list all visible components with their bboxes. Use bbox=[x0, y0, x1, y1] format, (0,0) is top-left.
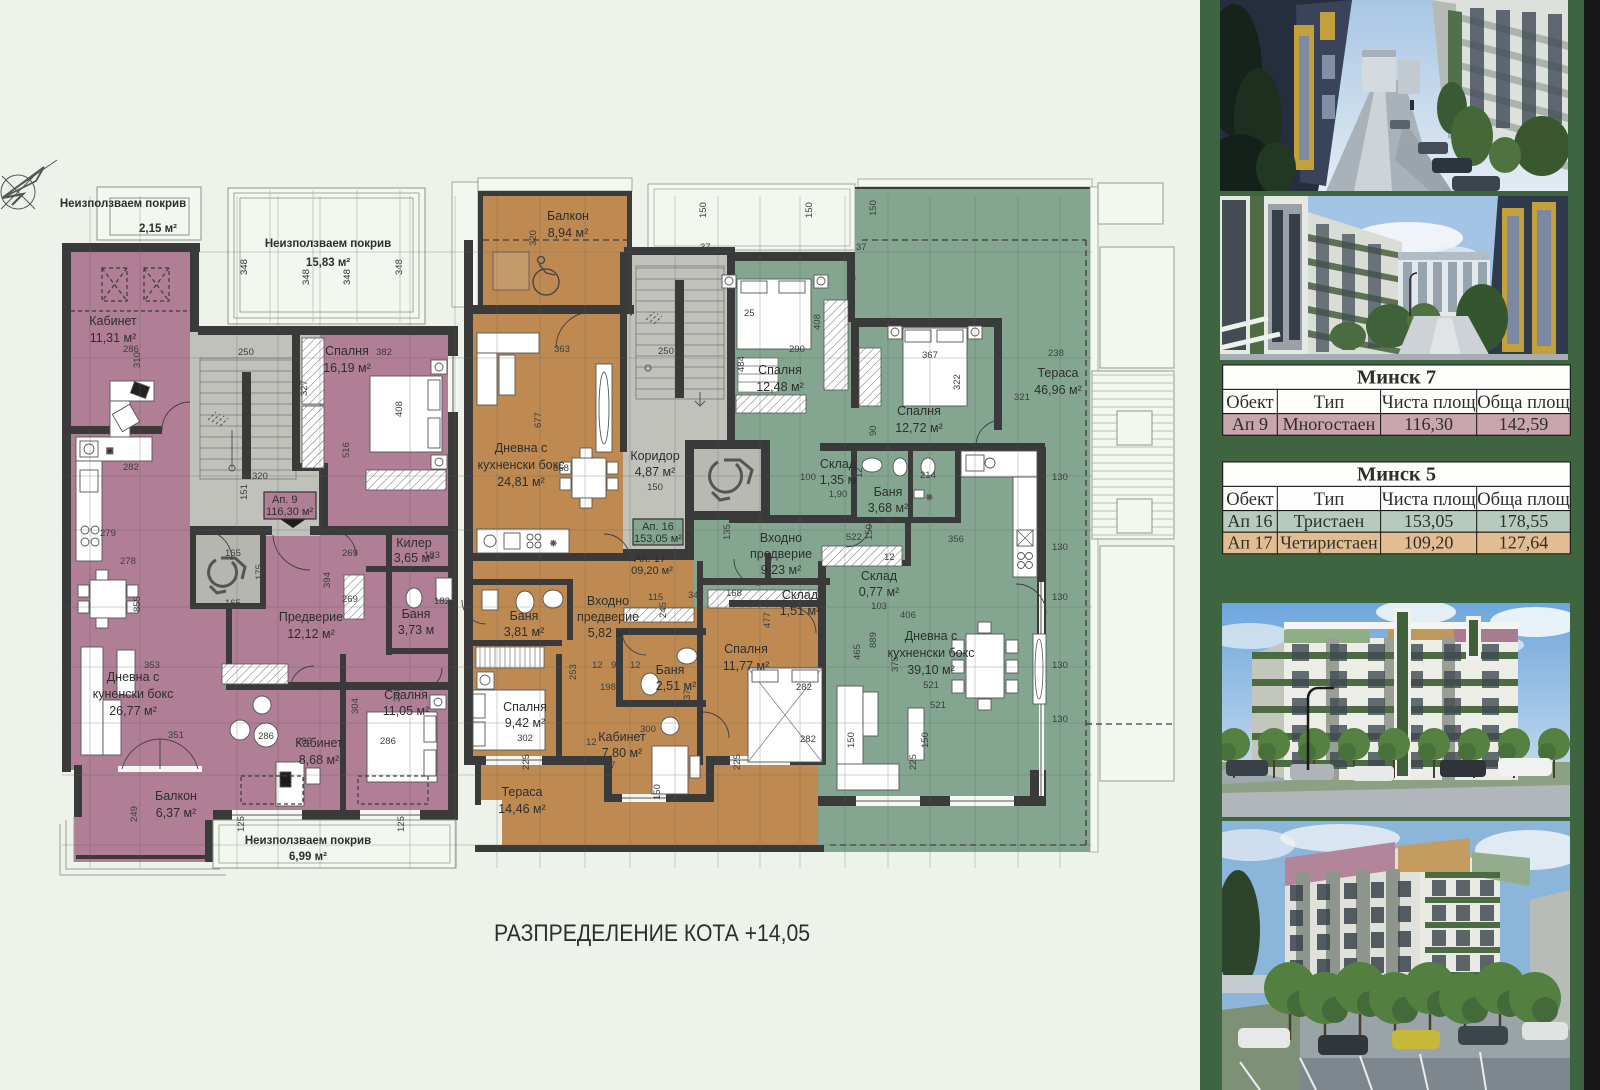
svg-text:3,81 м²: 3,81 м² bbox=[504, 625, 545, 639]
svg-text:37: 37 bbox=[605, 760, 616, 771]
svg-text:26,77 м²: 26,77 м² bbox=[109, 704, 157, 718]
svg-text:100: 100 bbox=[800, 472, 816, 483]
svg-text:✳: ✳ bbox=[550, 539, 557, 548]
svg-text:12,72 м²: 12,72 м² bbox=[895, 421, 943, 435]
svg-text:Склад: Склад bbox=[820, 457, 857, 471]
svg-text:Спалня: Спалня bbox=[724, 642, 768, 656]
svg-text:90: 90 bbox=[611, 660, 622, 671]
svg-text:368: 368 bbox=[553, 463, 569, 474]
svg-text:9,23 м²: 9,23 м² bbox=[761, 563, 802, 577]
svg-text:7,80 м²: 7,80 м² bbox=[602, 746, 643, 760]
svg-text:225: 225 bbox=[521, 754, 532, 770]
svg-text:2,15 м²: 2,15 м² bbox=[139, 223, 177, 235]
svg-text:4,87 м²: 4,87 м² bbox=[635, 465, 676, 479]
svg-text:Неизползваем покрив: Неизползваем покрив bbox=[60, 198, 186, 210]
svg-text:Минск 5: Минск 5 bbox=[1357, 464, 1436, 486]
svg-text:223: 223 bbox=[624, 300, 635, 316]
svg-text:12: 12 bbox=[586, 737, 597, 748]
svg-text:348: 348 bbox=[239, 259, 250, 275]
svg-text:Кабинет: Кабинет bbox=[89, 314, 137, 328]
svg-text:11,05 м²: 11,05 м² bbox=[383, 704, 430, 718]
svg-text:388: 388 bbox=[392, 686, 403, 702]
svg-text:225: 225 bbox=[908, 754, 919, 770]
svg-text:Баня: Баня bbox=[402, 607, 431, 621]
svg-text:300: 300 bbox=[640, 724, 656, 735]
svg-text:125: 125 bbox=[396, 816, 407, 832]
svg-text:406: 406 bbox=[900, 610, 916, 621]
svg-text:37: 37 bbox=[682, 689, 693, 700]
svg-text:Баня: Баня bbox=[510, 609, 539, 623]
svg-text:150: 150 bbox=[868, 200, 879, 216]
svg-text:521: 521 bbox=[930, 700, 946, 711]
svg-text:Входно: Входно bbox=[587, 594, 629, 608]
svg-text:348: 348 bbox=[301, 269, 312, 285]
svg-text:16,19 м²: 16,19 м² bbox=[323, 361, 371, 375]
svg-text:150: 150 bbox=[920, 732, 931, 748]
svg-text:Коридор: Коридор bbox=[630, 449, 679, 463]
svg-text:522: 522 bbox=[846, 532, 862, 543]
svg-text:Спалня: Спалня bbox=[503, 700, 547, 714]
svg-text:Обект: Обект bbox=[1226, 393, 1274, 413]
svg-text:Килер: Килер bbox=[396, 536, 432, 550]
svg-text:279: 279 bbox=[100, 528, 116, 539]
svg-text:103: 103 bbox=[871, 601, 887, 612]
svg-text:282: 282 bbox=[123, 462, 139, 473]
svg-text:521: 521 bbox=[923, 680, 939, 691]
svg-text:Ап 9: Ап 9 bbox=[1232, 414, 1268, 434]
svg-text:▣: ▣ bbox=[106, 446, 114, 455]
svg-text:Чиста площ: Чиста площ bbox=[1382, 490, 1476, 510]
svg-text:11,31 м²: 11,31 м² bbox=[90, 331, 137, 345]
svg-text:Ап. 17: Ап. 17 bbox=[634, 553, 666, 565]
svg-text:250: 250 bbox=[658, 346, 674, 357]
svg-text:142,59: 142,59 bbox=[1499, 414, 1549, 434]
svg-text:130: 130 bbox=[1052, 542, 1068, 553]
svg-text:39,10 м²: 39,10 м² bbox=[907, 663, 955, 677]
svg-text:куненски бокс: куненски бокс bbox=[93, 687, 174, 701]
svg-text:304: 304 bbox=[350, 698, 361, 714]
svg-text:12: 12 bbox=[630, 660, 641, 671]
svg-text:356: 356 bbox=[948, 534, 964, 545]
svg-text:394: 394 bbox=[322, 572, 333, 588]
svg-text:282: 282 bbox=[796, 682, 812, 693]
svg-text:150: 150 bbox=[804, 202, 815, 218]
svg-text:115: 115 bbox=[648, 592, 663, 603]
svg-text:Балкон: Балкон bbox=[547, 209, 589, 223]
svg-text:282: 282 bbox=[800, 734, 816, 745]
svg-text:37: 37 bbox=[856, 242, 867, 253]
svg-text:178,55: 178,55 bbox=[1499, 511, 1549, 531]
svg-text:Спалня: Спалня bbox=[325, 344, 369, 358]
svg-text:12: 12 bbox=[592, 660, 603, 671]
svg-text:0,77 м²: 0,77 м² bbox=[859, 585, 900, 599]
svg-text:кухненски бокс: кухненски бокс bbox=[477, 458, 564, 472]
svg-text:278: 278 bbox=[120, 556, 136, 567]
svg-text:182: 182 bbox=[434, 596, 450, 607]
svg-text:327: 327 bbox=[299, 380, 310, 396]
svg-text:165: 165 bbox=[225, 548, 241, 559]
svg-text:Многостаен: Многостаен bbox=[1283, 414, 1376, 434]
svg-text:320: 320 bbox=[528, 230, 539, 246]
svg-text:Ап. 9: Ап. 9 bbox=[272, 494, 298, 506]
svg-text:Обща площ: Обща площ bbox=[1477, 393, 1569, 413]
svg-text:290: 290 bbox=[789, 344, 805, 355]
svg-text:3,73 м: 3,73 м bbox=[398, 623, 434, 637]
svg-text:Ап 16: Ап 16 bbox=[1227, 511, 1272, 531]
svg-text:408: 408 bbox=[394, 401, 405, 417]
svg-text:11,77 м²: 11,77 м² bbox=[723, 659, 770, 673]
svg-text:175: 175 bbox=[254, 564, 265, 580]
svg-text:Баня: Баня bbox=[656, 663, 685, 677]
svg-text:Четиристаен: Четиристаен bbox=[1280, 533, 1378, 553]
svg-text:382: 382 bbox=[376, 347, 392, 358]
svg-text:Предверие: Предверие bbox=[279, 610, 343, 624]
svg-text:6,37 м²: 6,37 м² bbox=[156, 806, 197, 820]
svg-text:Кабинет: Кабинет bbox=[598, 730, 646, 744]
svg-text:90: 90 bbox=[868, 425, 879, 436]
svg-text:150: 150 bbox=[647, 482, 663, 493]
svg-text:320: 320 bbox=[252, 471, 268, 482]
svg-text:321: 321 bbox=[1014, 392, 1030, 403]
svg-text:348: 348 bbox=[342, 269, 353, 285]
svg-text:310: 310 bbox=[132, 352, 143, 368]
svg-text:25: 25 bbox=[744, 308, 755, 319]
svg-text:353: 353 bbox=[144, 660, 160, 671]
svg-text:Тераса: Тераса bbox=[502, 785, 543, 799]
svg-text:150: 150 bbox=[652, 784, 663, 800]
svg-text:предверие: предверие bbox=[750, 547, 812, 561]
svg-text:130: 130 bbox=[1052, 714, 1068, 725]
svg-text:135: 135 bbox=[722, 524, 733, 540]
svg-text:Спалня: Спалня bbox=[758, 363, 802, 377]
svg-text:Тип: Тип bbox=[1314, 393, 1345, 413]
svg-text:24,81 м²: 24,81 м² bbox=[497, 475, 545, 489]
svg-text:12,12 м²: 12,12 м² bbox=[287, 627, 335, 641]
svg-text:8,68 м²: 8,68 м² bbox=[299, 753, 340, 767]
svg-text:Тристаен: Тристаен bbox=[1294, 511, 1365, 531]
svg-text:269: 269 bbox=[342, 594, 358, 605]
svg-text:855: 855 bbox=[132, 596, 143, 612]
svg-text:302: 302 bbox=[517, 733, 533, 744]
svg-text:225: 225 bbox=[732, 754, 743, 770]
svg-text:09,20 м²: 09,20 м² bbox=[631, 565, 673, 577]
svg-text:249: 249 bbox=[129, 806, 140, 822]
svg-text:Обща площ: Обща площ bbox=[1477, 490, 1569, 510]
svg-text:214: 214 bbox=[920, 470, 936, 481]
svg-text:130: 130 bbox=[1052, 472, 1068, 483]
svg-text:Склад: Склад bbox=[861, 569, 898, 583]
svg-text:151: 151 bbox=[239, 484, 250, 500]
svg-text:Минск 7: Минск 7 bbox=[1357, 367, 1436, 389]
svg-text:125: 125 bbox=[236, 816, 247, 832]
svg-text:408: 408 bbox=[812, 314, 823, 330]
svg-text:150: 150 bbox=[698, 202, 709, 218]
svg-text:238: 238 bbox=[1048, 348, 1064, 359]
svg-text:465: 465 bbox=[852, 644, 863, 660]
svg-text:130: 130 bbox=[1052, 660, 1068, 671]
svg-text:Тераса: Тераса bbox=[1038, 366, 1079, 380]
svg-text:351: 351 bbox=[168, 730, 184, 741]
svg-text:1,90: 1,90 bbox=[829, 489, 848, 500]
svg-text:150: 150 bbox=[846, 732, 857, 748]
svg-text:127,64: 127,64 bbox=[1499, 533, 1549, 553]
svg-text:12,48 м²: 12,48 м² bbox=[756, 380, 804, 394]
svg-text:Тип: Тип bbox=[1314, 490, 1345, 510]
svg-text:46,96 м²: 46,96 м² bbox=[1034, 383, 1082, 397]
svg-text:Дневна с: Дневна с bbox=[905, 629, 958, 643]
svg-text:Склад: Склад bbox=[782, 588, 819, 602]
svg-text:Дневна с: Дневна с bbox=[107, 670, 160, 684]
svg-text:516: 516 bbox=[341, 442, 352, 458]
svg-text:348: 348 bbox=[394, 259, 405, 275]
svg-text:286: 286 bbox=[258, 731, 274, 742]
svg-text:322: 322 bbox=[952, 374, 963, 390]
svg-text:677: 677 bbox=[533, 412, 544, 428]
svg-text:116,30: 116,30 bbox=[1404, 414, 1453, 434]
svg-text:198: 198 bbox=[600, 682, 616, 693]
svg-text:Ап 17: Ап 17 bbox=[1227, 533, 1272, 553]
svg-text:347: 347 bbox=[688, 590, 704, 601]
svg-text:1,35 м: 1,35 м bbox=[820, 473, 856, 487]
svg-text:Чиста площ: Чиста площ bbox=[1382, 393, 1476, 413]
svg-text:Спалня: Спалня bbox=[897, 404, 941, 418]
svg-text:15,83 м²: 15,83 м² bbox=[306, 257, 350, 269]
svg-text:168: 168 bbox=[726, 588, 742, 599]
svg-text:165: 165 bbox=[225, 598, 241, 609]
svg-text:253: 253 bbox=[568, 664, 579, 680]
svg-text:РАЗПРЕДЕЛЕНИЕ КОТА +14,05: РАЗПРЕДЕЛЕНИЕ КОТА +14,05 bbox=[494, 920, 810, 947]
svg-text:130: 130 bbox=[1052, 592, 1068, 603]
svg-text:Дневна с: Дневна с bbox=[495, 441, 548, 455]
svg-text:367: 367 bbox=[922, 350, 938, 361]
svg-text:183: 183 bbox=[424, 550, 440, 561]
svg-text:245: 245 bbox=[658, 602, 669, 618]
svg-text:14,46 м²: 14,46 м² bbox=[498, 802, 546, 816]
svg-text:286: 286 bbox=[296, 736, 312, 747]
svg-text:116,30 м²: 116,30 м² bbox=[266, 506, 313, 518]
svg-text:375: 375 bbox=[890, 656, 901, 672]
svg-text:12: 12 bbox=[854, 467, 865, 478]
svg-text:250: 250 bbox=[238, 347, 254, 358]
svg-text:Балкон: Балкон bbox=[155, 789, 197, 803]
svg-text:477: 477 bbox=[762, 612, 773, 628]
svg-text:Ап. 16: Ап. 16 bbox=[642, 521, 674, 533]
svg-text:889: 889 bbox=[868, 632, 879, 648]
svg-text:Обект: Обект bbox=[1226, 490, 1274, 510]
svg-text:37: 37 bbox=[700, 242, 711, 253]
svg-text:Входно: Входно bbox=[760, 531, 802, 545]
svg-text:12: 12 bbox=[884, 552, 895, 563]
svg-text:153,05: 153,05 bbox=[1404, 511, 1454, 531]
svg-text:484: 484 bbox=[736, 356, 747, 372]
svg-text:6,99 м²: 6,99 м² bbox=[289, 851, 327, 863]
svg-text:✳: ✳ bbox=[926, 493, 933, 502]
svg-text:286: 286 bbox=[380, 736, 396, 747]
svg-text:109,20: 109,20 bbox=[1404, 533, 1454, 553]
svg-text:Неизползваем покрив: Неизползваем покрив bbox=[265, 238, 391, 250]
svg-text:8,94 м²: 8,94 м² bbox=[548, 226, 589, 240]
